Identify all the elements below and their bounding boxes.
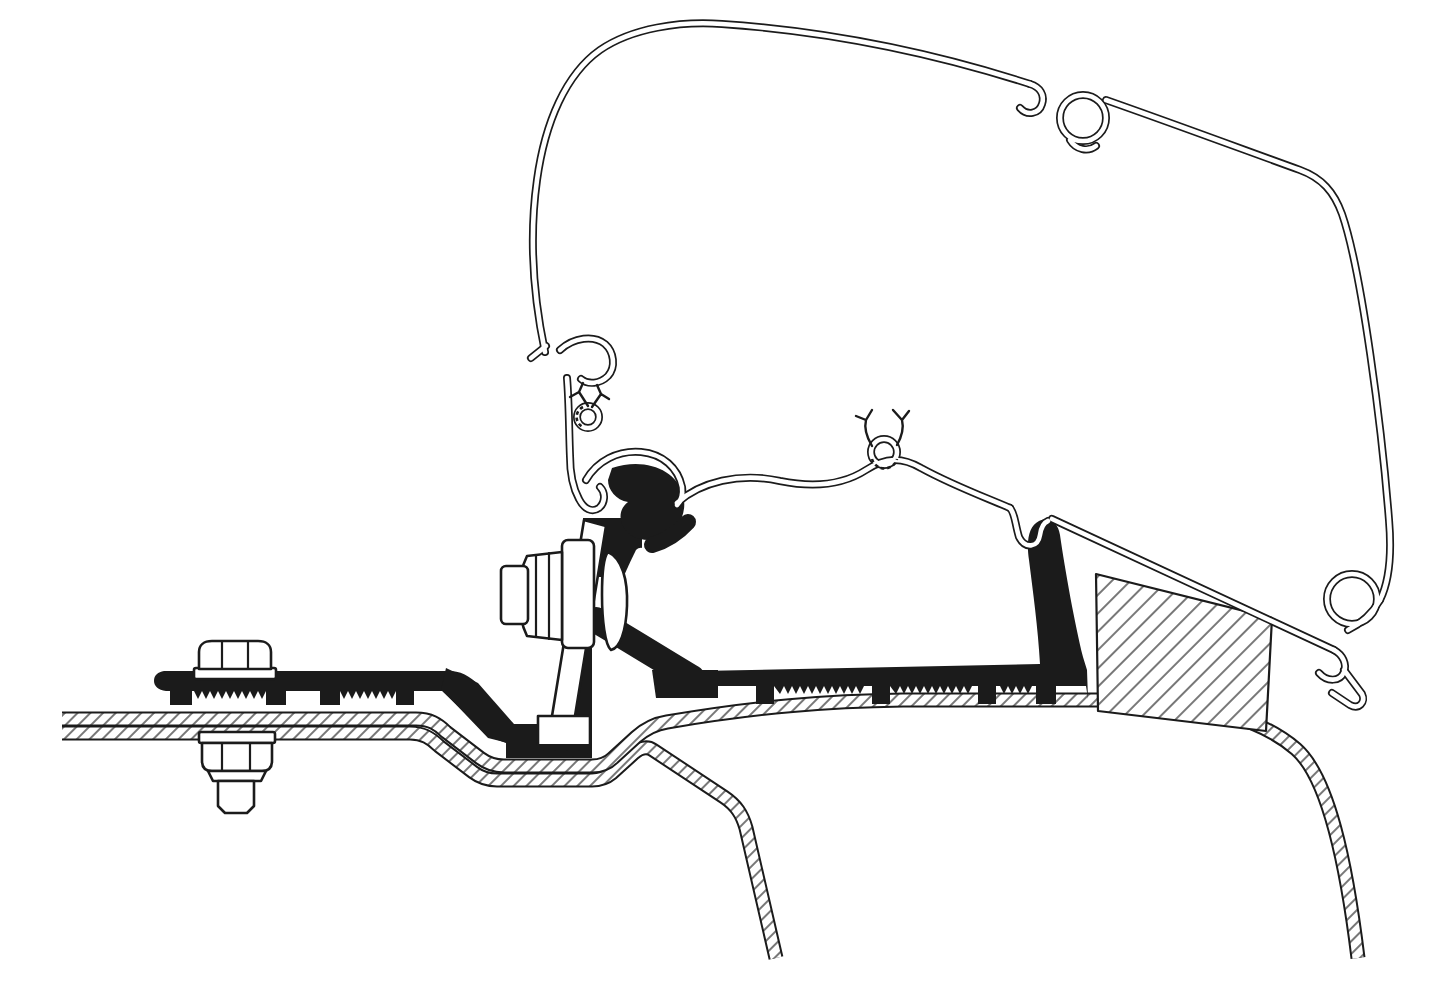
nut-chamfer-collar — [208, 771, 266, 781]
awning-profile-outline — [531, 23, 1390, 706]
awning-profile-core — [531, 23, 1390, 706]
lower-washer — [199, 732, 275, 743]
cross-section-diagram: Awning roof adapter cross-section — [0, 0, 1453, 1000]
awning-profiles — [531, 23, 1390, 706]
rail-flange-foot — [538, 716, 590, 746]
clamp-bolt-tip — [501, 566, 528, 624]
foam-packer-block — [1096, 574, 1272, 731]
roof-inner-sheet — [62, 733, 776, 958]
roof-mounting-bolt-lower — [199, 732, 275, 813]
roof-mounting-bolt-upper — [194, 641, 276, 679]
hex-nut — [202, 743, 272, 771]
diagram-canvas — [0, 0, 1453, 1000]
stud-end — [218, 781, 254, 813]
hex-bolt-head — [199, 641, 271, 669]
clamp-bolt-washer — [562, 540, 594, 648]
